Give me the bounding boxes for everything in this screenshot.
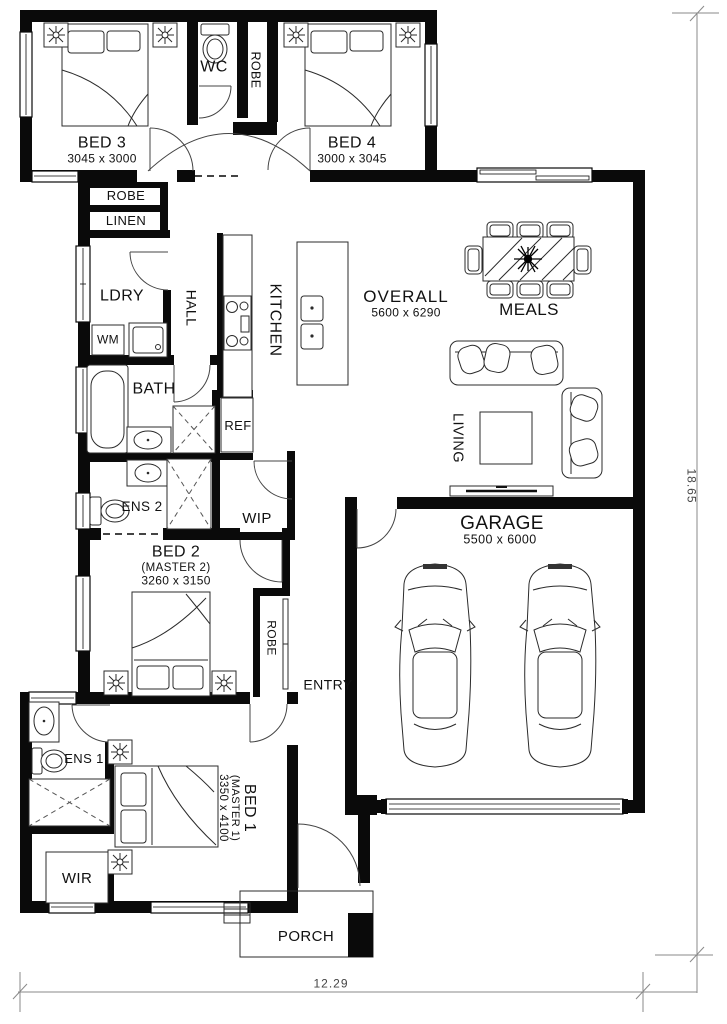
room-label-kitchen: KITCHEN bbox=[266, 283, 283, 356]
room-label-wir: WIR bbox=[62, 871, 92, 887]
room-dims-bed1: 3350 x 4100 bbox=[217, 774, 229, 842]
room-label-hall: HALL bbox=[184, 290, 199, 327]
room-dims-bed2: 3260 x 3150 bbox=[141, 575, 210, 588]
room-label-robe-bed3: ROBE bbox=[107, 189, 145, 203]
room-label-linen: LINEN bbox=[106, 214, 146, 228]
room-sub-bed2: (MASTER 2) bbox=[141, 562, 210, 574]
label-ref: REF bbox=[224, 419, 251, 433]
room-label-ldry: LDRY bbox=[100, 289, 144, 306]
room-dims-bed3: 3045 x 3000 bbox=[67, 153, 136, 166]
room-label-robe-top: ROBE bbox=[248, 51, 261, 88]
room-label-wip: WIP bbox=[242, 511, 272, 527]
room-dims-bed4: 3000 x 3045 bbox=[317, 153, 386, 166]
dimension-depth: 18.65 bbox=[685, 468, 698, 503]
room-labels: BED 3 3045 x 3000 WC ROBE BED 4 3000 x 3… bbox=[0, 0, 727, 1024]
room-label-ens1: ENS 1 bbox=[64, 752, 104, 766]
room-label-wc: WC bbox=[200, 60, 227, 77]
room-label-bed1: BED 1 bbox=[240, 774, 257, 842]
room-label-bed1-block: BED 1 (MASTER 1) 3350 x 4100 bbox=[217, 774, 257, 842]
room-label-ens2: ENS 2 bbox=[121, 500, 162, 514]
label-wm: WM bbox=[97, 334, 119, 347]
room-label-robe-bed2: ROBE bbox=[265, 620, 278, 656]
room-label-bed3: BED 3 bbox=[78, 136, 126, 153]
room-sub-bed1: (MASTER 1) bbox=[229, 774, 241, 842]
room-label-living: LIVING bbox=[449, 413, 464, 463]
floor-plan: BED 3 3045 x 3000 WC ROBE BED 4 3000 x 3… bbox=[0, 0, 727, 1024]
room-dims-garage: 5500 x 6000 bbox=[463, 533, 536, 546]
room-label-porch: PORCH bbox=[278, 929, 334, 945]
label-overall: OVERALL bbox=[363, 288, 448, 306]
room-label-entry: ENTRY bbox=[303, 678, 352, 693]
room-label-meals: MEALS bbox=[499, 301, 559, 319]
dimension-width: 12.29 bbox=[313, 978, 348, 991]
room-label-bath: BATH bbox=[132, 382, 175, 399]
room-label-bed4: BED 4 bbox=[328, 136, 376, 153]
dims-overall: 5600 x 6290 bbox=[371, 307, 440, 320]
room-label-bed2: BED 2 bbox=[152, 545, 200, 562]
room-label-garage: GARAGE bbox=[460, 514, 544, 534]
